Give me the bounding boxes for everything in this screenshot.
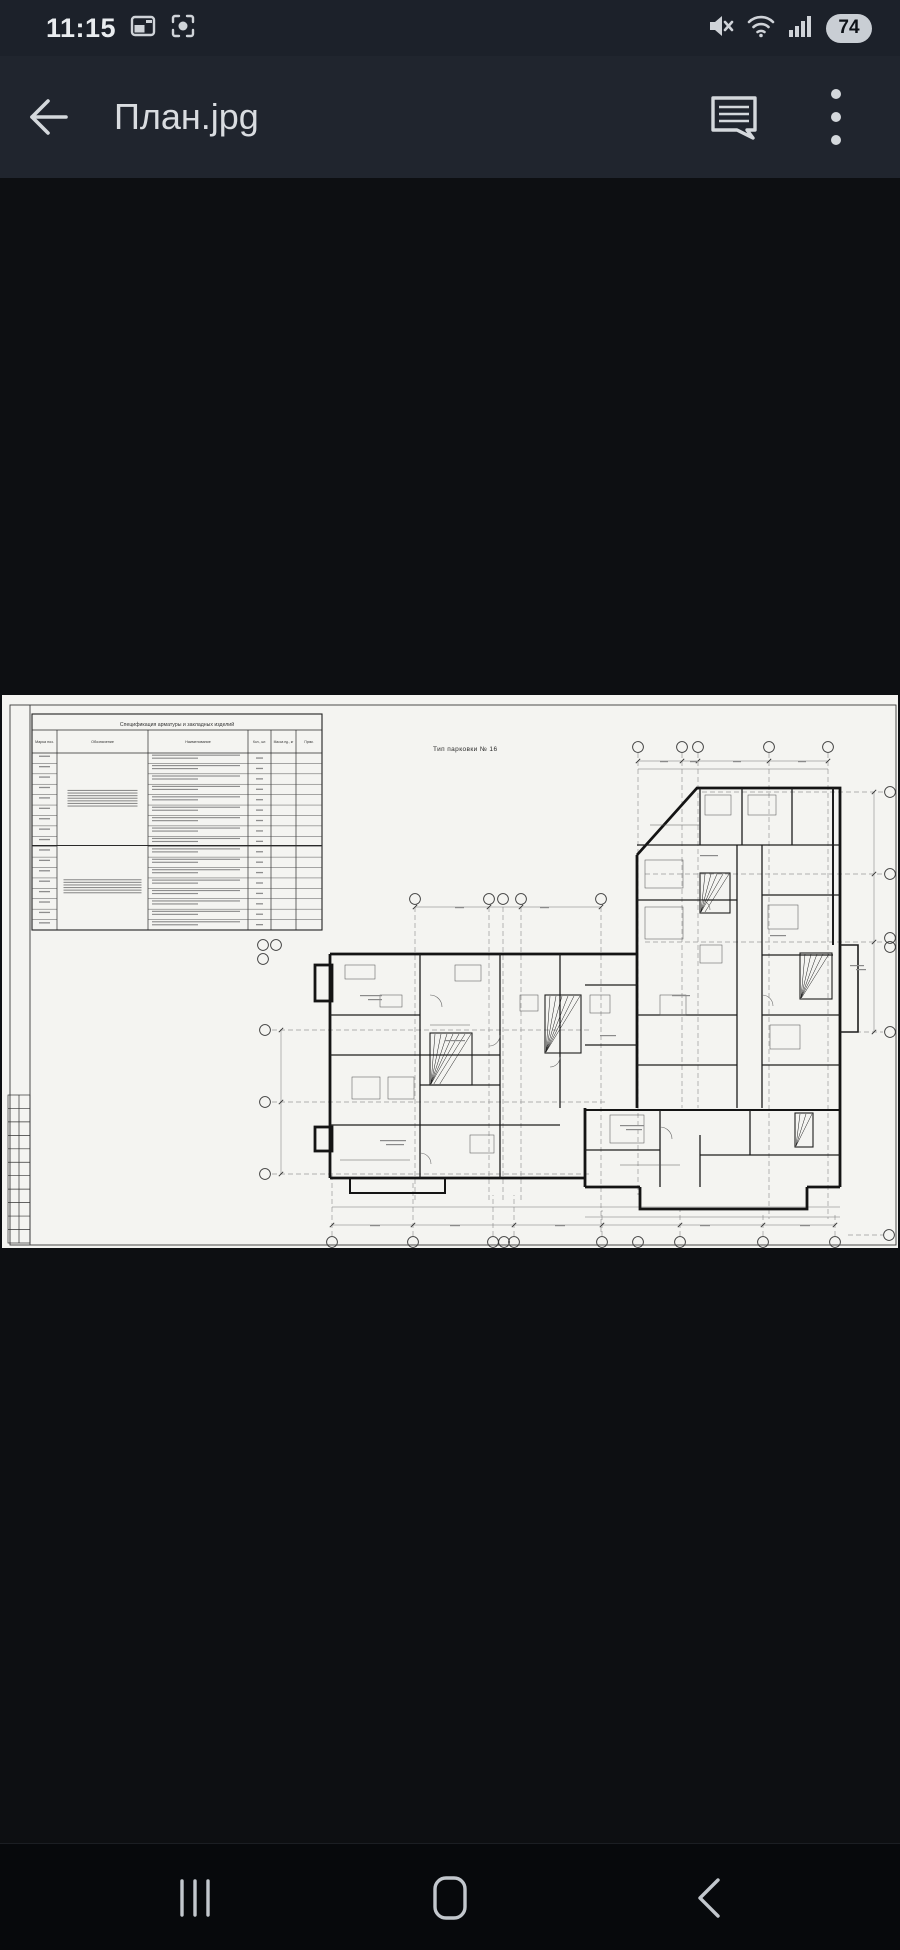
spec-col-5: Прим. (304, 740, 313, 744)
phone-screen: 11:15 (0, 0, 900, 1950)
navigation-bar (0, 1843, 900, 1950)
spec-col-1: Обозначение (91, 740, 114, 744)
home-icon (432, 1875, 468, 1921)
mute-icon (706, 12, 734, 45)
signal-icon (788, 13, 814, 44)
comment-icon (707, 92, 761, 142)
battery-pill: 74 (826, 14, 872, 43)
clock: 11:15 (46, 13, 116, 44)
back-chevron-icon (694, 1876, 722, 1920)
back-nav-button[interactable] (648, 1844, 768, 1950)
image-viewer-canvas[interactable]: Спецификация арматуры и закладных издели… (0, 178, 900, 1843)
back-arrow-icon (22, 93, 74, 141)
spec-col-4: Масса ед., кг (274, 740, 295, 744)
spec-col-3: Кол., шт. (253, 740, 266, 744)
recents-button[interactable] (135, 1844, 255, 1950)
spec-col-2: Наименование (185, 740, 211, 744)
gallery-notification-icon (130, 13, 156, 44)
comment-button[interactable] (696, 92, 772, 142)
status-bar: 11:15 (0, 0, 900, 56)
app-bar: План.jpg (0, 56, 900, 178)
recents-icon (175, 1878, 215, 1918)
floor-plan-drawing: Спецификация арматуры и закладных издели… (0, 695, 900, 1248)
spec-table-title: Спецификация арматуры и закладных издели… (120, 721, 234, 728)
screen-capture-icon (170, 13, 196, 44)
home-button[interactable] (390, 1844, 510, 1950)
spec-col-0: Марка поз. (35, 740, 54, 744)
kebab-menu-icon (829, 86, 843, 148)
overflow-menu-button[interactable] (798, 86, 874, 148)
drawing-title: Тип парковки № 16 (433, 746, 497, 753)
wifi-icon (746, 13, 776, 44)
file-title: План.jpg (96, 96, 696, 138)
back-button[interactable] (0, 56, 96, 178)
floor-plan-image[interactable]: Спецификация арматуры и закладных издели… (0, 695, 900, 1248)
paper-sheet (2, 695, 898, 1248)
